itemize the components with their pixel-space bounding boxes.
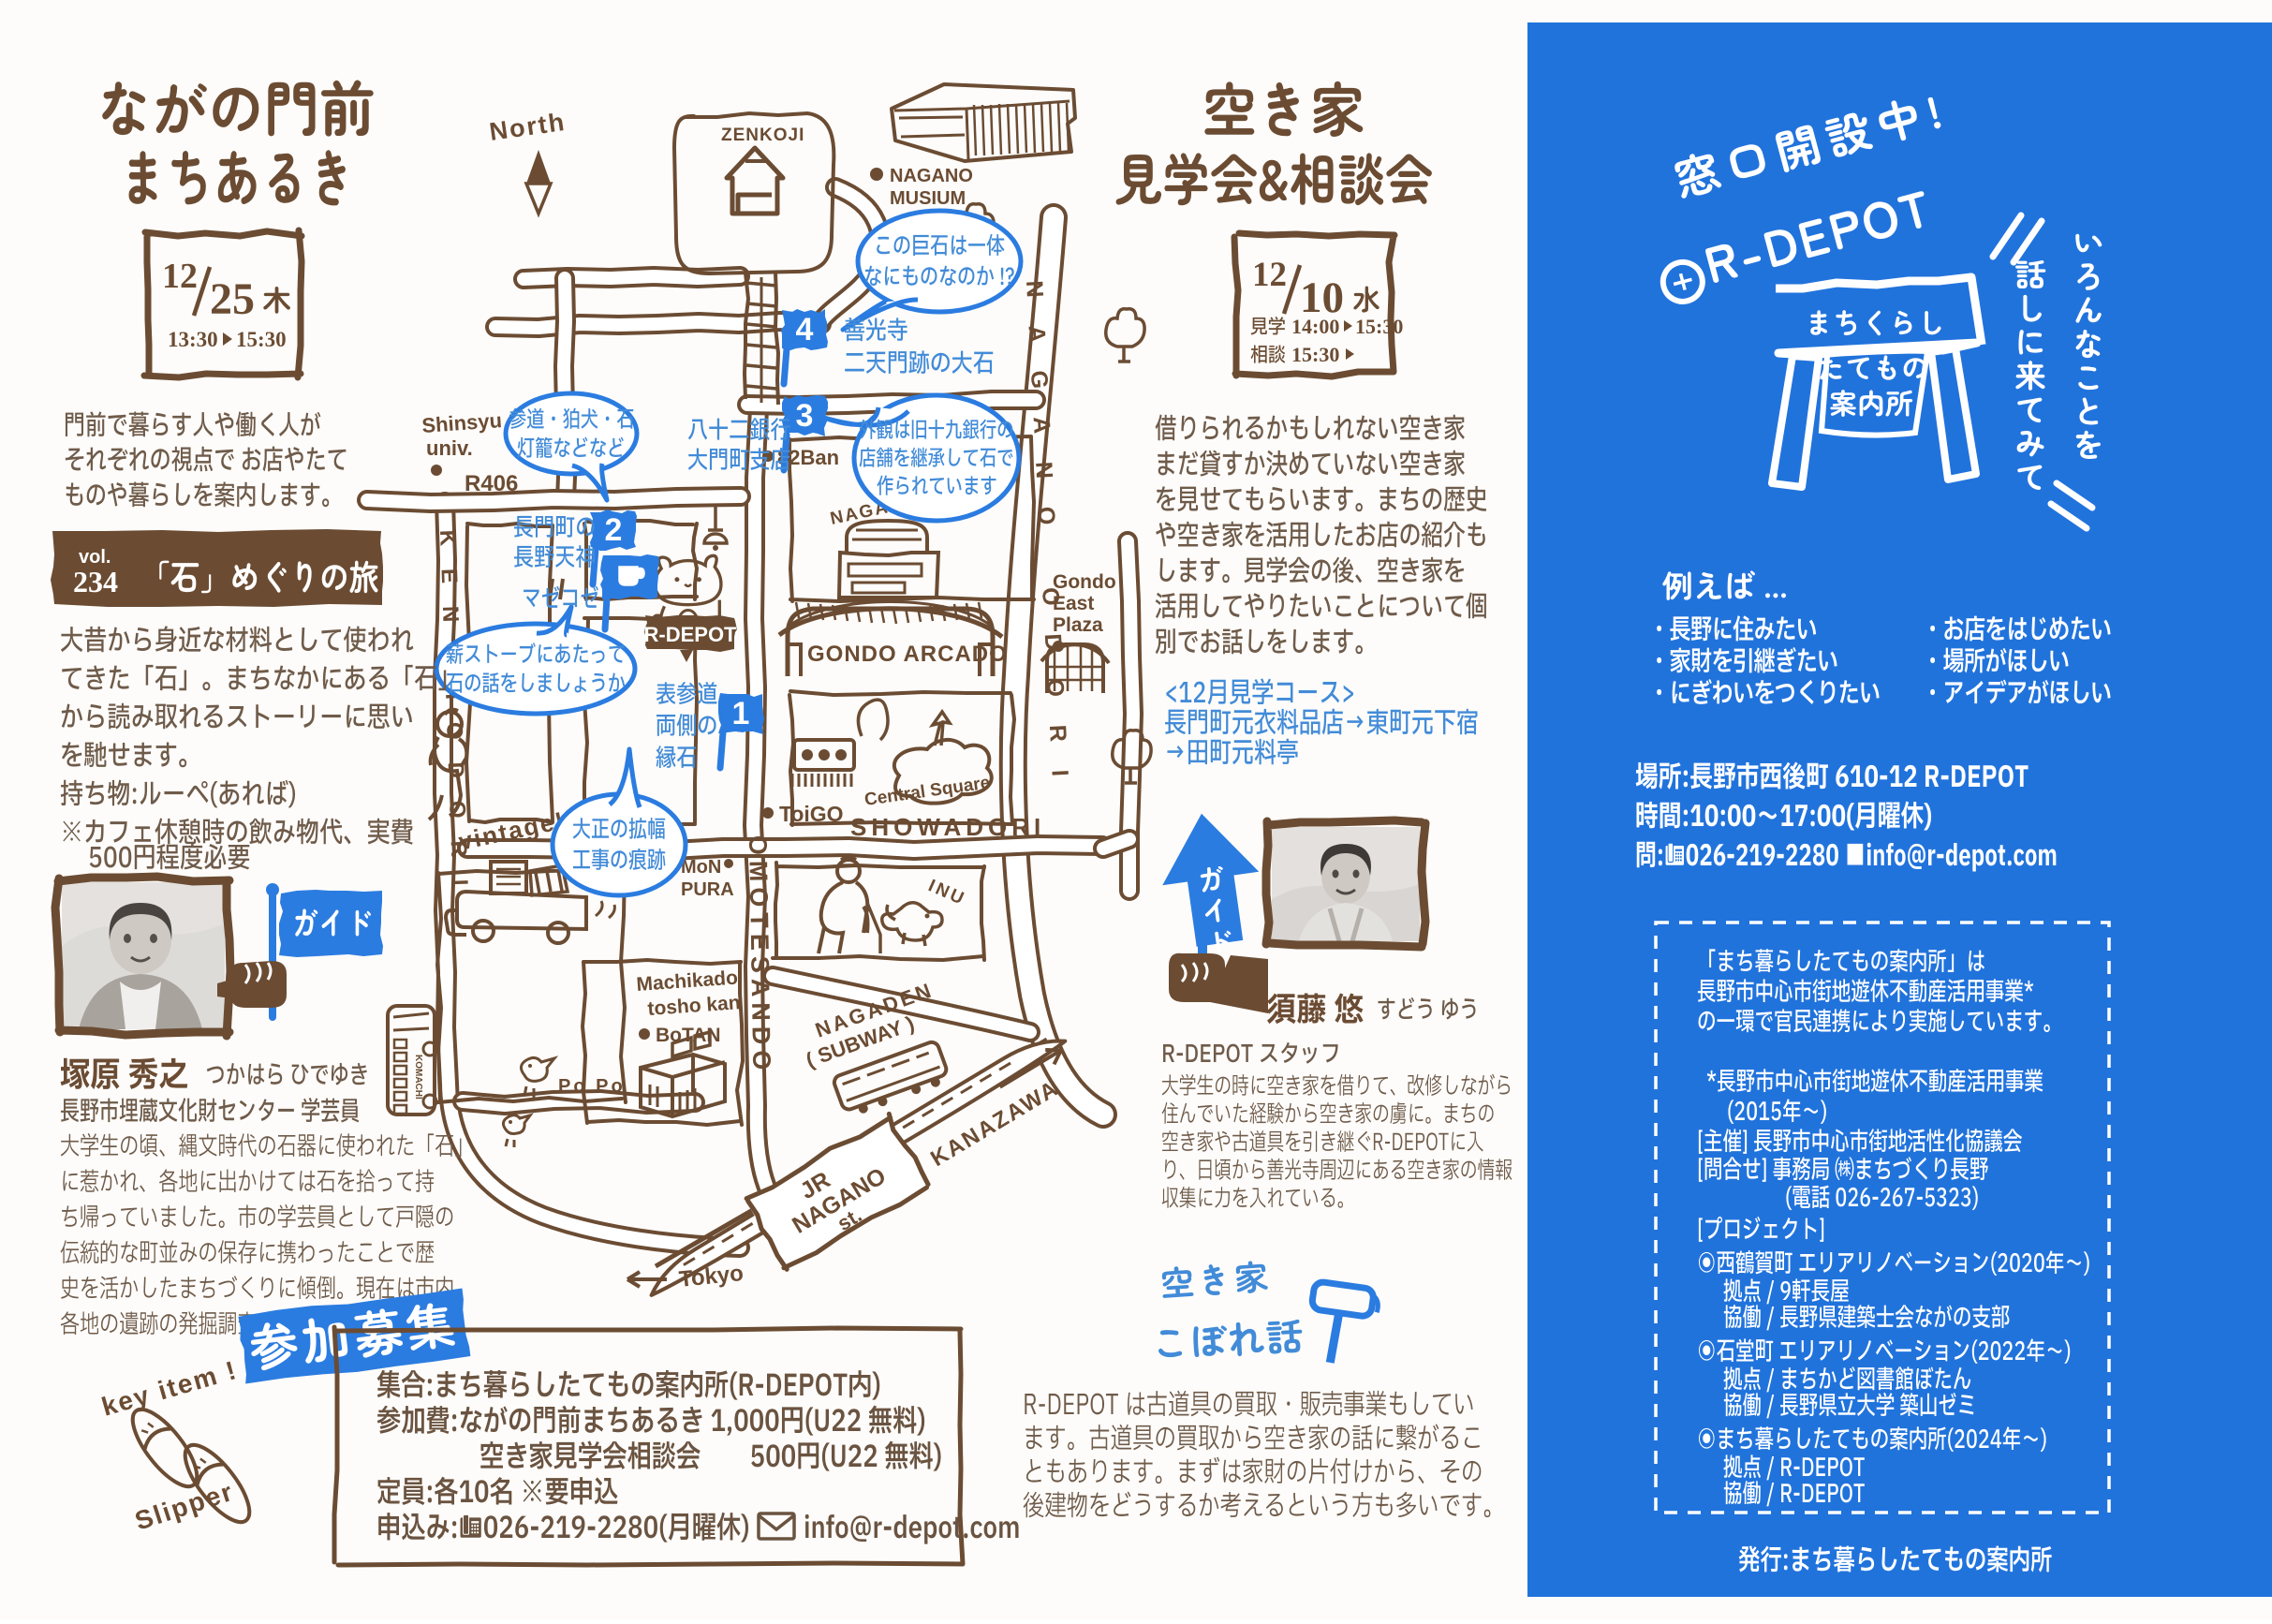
svg-text:15:30: 15:30 bbox=[236, 328, 287, 351]
svg-text:Po Po: Po Po bbox=[558, 1076, 626, 1097]
svg-text:R406: R406 bbox=[465, 471, 518, 496]
svg-text:15:30: 15:30 bbox=[1355, 315, 1403, 338]
svg-text:15:30: 15:30 bbox=[1291, 343, 1339, 366]
svg-text:MUSIUM: MUSIUM bbox=[890, 188, 966, 209]
svg-text:R-DEPOT: R-DEPOT bbox=[644, 623, 738, 646]
svg-text:4: 4 bbox=[796, 312, 814, 347]
svg-text:12: 12 bbox=[1252, 256, 1287, 294]
svg-text:univ.: univ. bbox=[426, 436, 473, 460]
svg-text:1: 1 bbox=[732, 696, 750, 731]
svg-text:12: 12 bbox=[162, 257, 198, 296]
svg-text:PURA: PURA bbox=[681, 879, 734, 900]
svg-text:ZENKOJI: ZENKOJI bbox=[721, 125, 804, 145]
svg-text:OMOTESANDO: OMOTESANDO bbox=[744, 835, 775, 1076]
svg-text:25: 25 bbox=[210, 274, 255, 324]
svg-text:East: East bbox=[1053, 593, 1094, 614]
svg-text:13:30: 13:30 bbox=[168, 328, 218, 351]
svg-text:GONDO ARCADO: GONDO ARCADO bbox=[807, 642, 1008, 667]
svg-text:234: 234 bbox=[73, 565, 118, 598]
svg-text:3: 3 bbox=[796, 398, 814, 434]
svg-text:2: 2 bbox=[605, 512, 623, 548]
svg-text:NAGANO: NAGANO bbox=[890, 166, 973, 186]
svg-text:KOMACHI: KOMACHI bbox=[413, 1055, 423, 1100]
svg-text:SHOWADORI: SHOWADORI bbox=[850, 813, 1045, 841]
svg-text:Plaza: Plaza bbox=[1053, 614, 1103, 636]
svg-text:ToiGO: ToiGO bbox=[779, 802, 844, 826]
svg-text:14:00: 14:00 bbox=[1291, 315, 1339, 338]
svg-text:Gondo: Gondo bbox=[1053, 571, 1116, 593]
svg-text:MoN: MoN bbox=[681, 857, 721, 878]
